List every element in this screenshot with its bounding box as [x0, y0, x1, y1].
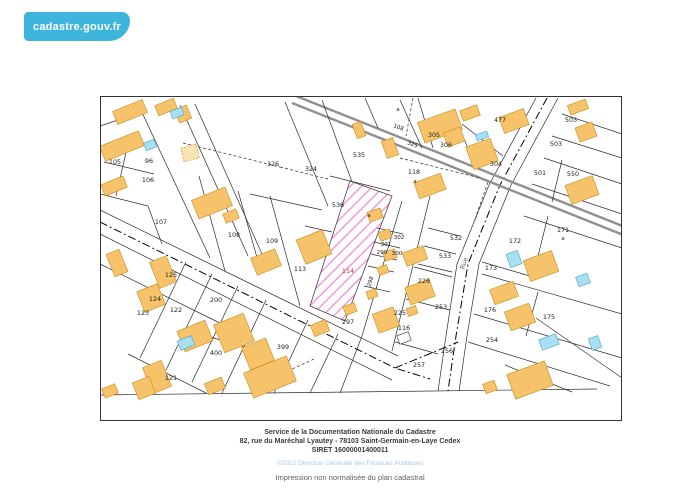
parcel-label-122: 122	[170, 306, 182, 314]
parcel-label-200: 200	[210, 296, 222, 304]
parcel-label-324: 324	[305, 165, 317, 173]
footer-notice: Impression non normalisée du plan cadast…	[0, 473, 700, 482]
footer-copyright: ©2022 Direction Générale des Finances Pu…	[0, 460, 700, 468]
parcel-label-550: 550	[567, 170, 579, 178]
parcel-label-226: 226	[418, 277, 430, 285]
parcel-label-a: a	[561, 236, 564, 242]
parcel-label-306: 306	[440, 141, 452, 149]
cadastral-map: 1059610610710810912512412312212120040039…	[100, 96, 622, 421]
print-footer: Service de la Documentation Nationale du…	[0, 429, 700, 483]
parcel-label-107: 107	[155, 218, 167, 226]
parcel-label-118: 118	[408, 168, 420, 176]
parcel-label-116: 116	[398, 324, 410, 332]
parcel-label-501: 501	[534, 169, 546, 177]
parcel-label-172: 172	[509, 237, 521, 245]
parcel-label-114: 114	[342, 267, 354, 275]
parcel-label-125: 125	[165, 271, 177, 279]
parcel-label-109: 109	[266, 237, 278, 245]
parcel-label-225: 225	[394, 309, 406, 317]
logo-text: cadastre.gouv.fr	[33, 21, 121, 33]
parcel-label-108: 108	[228, 231, 240, 239]
parcel-label-304: 304	[490, 160, 502, 168]
parcel-label-253: 253	[435, 303, 447, 311]
parcel-label-176: 176	[484, 306, 496, 314]
parcel-label-400: 400	[210, 349, 222, 357]
parcel-label-175: 175	[543, 313, 555, 321]
footer-siret: SIRET 16000001400011	[0, 447, 700, 456]
parcel-label-535: 535	[353, 151, 365, 159]
parcel-label-105: 105	[109, 158, 121, 166]
parcel-label-257: 257	[413, 361, 425, 369]
parcel-label-256: 256	[441, 347, 453, 355]
parcel-label-532: 532	[450, 234, 462, 242]
parcel-label-a: a	[413, 179, 416, 185]
parcel-label-477: 477	[494, 116, 506, 124]
parcel-label-124: 124	[149, 295, 161, 303]
cadastre-gouv-logo: cadastre.gouv.fr	[24, 12, 130, 41]
parcel-label-121: 121	[165, 374, 177, 382]
parcel-label-a: a	[396, 107, 399, 113]
parcel-label-503: 503	[550, 140, 562, 148]
parcel-label-399: 399	[277, 343, 289, 351]
parcel-label-305: 305	[428, 131, 440, 139]
parcel-label-297: 297	[342, 318, 354, 326]
parcel-label-106: 106	[142, 176, 154, 184]
parcel-label-171: 171	[557, 226, 569, 234]
parcel-label-113: 113	[294, 265, 306, 273]
cadastral-map-frame: 1059610610710810912512412312212120040039…	[100, 96, 622, 421]
parcel-label-503: 503	[565, 116, 577, 124]
parcel-label-299: 299	[377, 250, 388, 256]
parcel-label-254: 254	[486, 336, 498, 344]
parcel-label-302: 302	[394, 235, 405, 241]
parcel-label-173: 173	[485, 264, 497, 272]
parcel-label-a: a	[367, 213, 370, 219]
parcel-label-300: 300	[392, 251, 403, 257]
parcel-label-533: 533	[439, 252, 451, 260]
footer-address: 82, rue du Maréchal Lyautey - 78103 Sain…	[0, 438, 700, 447]
parcel-label-536: 536	[332, 201, 344, 209]
parcel-label-301: 301	[381, 242, 392, 248]
parcel-label-326: 326	[267, 160, 279, 168]
parcel-label-123: 123	[137, 309, 149, 317]
footer-service-name: Service de la Documentation Nationale du…	[0, 429, 700, 438]
parcel-label-96: 96	[145, 157, 153, 165]
